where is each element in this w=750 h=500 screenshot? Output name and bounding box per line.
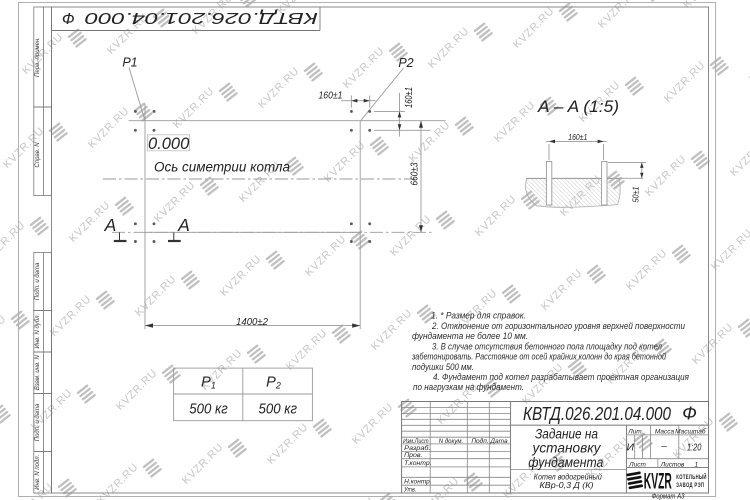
svg-text:И: И [626,442,634,454]
svg-text:Утв.: Утв. [403,486,416,493]
svg-text:KVZR.RU: KVZR.RU [171,85,217,131]
svg-text:KVZR.RU: KVZR.RU [728,133,750,179]
svg-text:660±3: 660±3 [409,162,421,185]
svg-text:Справ. N: Справ. N [35,142,41,168]
svg-text:Ф: Ф [62,9,75,26]
svg-text:КВТД.026.201.04.000: КВТД.026.201.04.000 [85,9,318,26]
svg-text:160±1: 160±1 [319,90,343,102]
svg-text:KVZR.RU: KVZR.RU [303,233,349,279]
svg-text:Дата: Дата [489,438,508,445]
svg-text:Пров.: Пров. [404,452,423,459]
svg-text:Масштаб: Масштаб [675,428,706,436]
svg-text:50±1: 50±1 [631,186,641,202]
svg-text:KVZR.RU: KVZR.RU [86,105,132,151]
svg-text:KVZR.RU: KVZR.RU [284,327,330,373]
svg-text:KVZR.RU: KVZR.RU [492,99,538,145]
svg-text:Перв. примен.: Перв. примен. [35,37,41,77]
svg-text:Инв. N подл.: Инв. N подл. [35,455,41,490]
svg-text:KVZR.RU: KVZR.RU [369,307,415,353]
svg-text:Листов: Листов [660,462,685,469]
svg-text:KVZR.RU: KVZR.RU [473,193,519,239]
svg-text:KVZR.RU: KVZR.RU [690,321,736,367]
svg-text:KVZR.RU: KVZR.RU [520,361,566,407]
svg-text:КВр-0,3 Д (К): КВр-0,3 Д (К) [540,480,594,490]
svg-text:KVZR.RU: KVZR.RU [95,461,141,500]
svg-text:P2: P2 [398,56,413,70]
svg-text:Инв. N дубл.: Инв. N дубл. [35,314,41,349]
svg-text:KVZR.RU: KVZR.RU [265,421,311,467]
svg-text:P1: P1 [122,56,137,70]
svg-text:KVZR: KVZR [644,469,672,494]
svg-text:ЗАВОД РЭП: ЗАВОД РЭП [676,483,704,489]
svg-text:KVZR.RU: KVZR.RU [218,253,264,299]
svg-text:KVZR.RU: KVZR.RU [10,481,56,500]
svg-text:Лит.: Лит. [627,429,643,436]
svg-text:160±1: 160±1 [403,87,415,108]
svg-text:KVZR.RU: KVZR.RU [350,401,396,447]
svg-text:KVZR.RU: KVZR.RU [624,247,670,293]
svg-text:500 кг: 500 кг [189,402,228,418]
svg-text:Масса: Масса [655,429,675,436]
svg-text:A – A (1:5): A – A (1:5) [537,98,619,116]
svg-text:KVZR.RU: KVZR.RU [643,153,689,199]
svg-text:забетонировать. Расстояние от: забетонировать. Расстояние от осей крайн… [411,352,666,363]
svg-text:A: A [104,215,117,235]
svg-text:по нагрузкам на фундамент.: по нагрузкам на фундамент. [413,382,524,393]
svg-text:Формат А3: Формат А3 [652,491,686,500]
svg-text:KVZR.RU: KVZR.RU [0,219,28,265]
svg-text:0.000: 0.000 [148,135,190,153]
svg-text:KVZR.RU: KVZR.RU [20,31,66,77]
svg-text:КВТД.026.201.04.000: КВТД.026.201.04.000 [523,403,672,424]
svg-text:KVZR.RU: KVZR.RU [0,313,9,359]
svg-text:KVZR.RU: KVZR.RU [426,25,472,71]
svg-text:Лист: Лист [628,461,646,468]
svg-text:Подп. и дата: Подп. и дата [35,262,41,300]
svg-text:A: A [177,215,190,235]
svg-text:KVZR.RU: KVZR.RU [511,5,557,51]
svg-text:500 кг: 500 кг [259,402,298,418]
svg-text:KVZR.RU: KVZR.RU [133,273,179,319]
svg-text:KVZR.RU: KVZR.RU [407,119,453,165]
svg-text:N докум.: N докум. [439,437,464,445]
svg-text:Подп.: Подп. [471,437,488,445]
svg-text:KVZR.RU: KVZR.RU [662,59,708,105]
svg-text:KVZR.RU: KVZR.RU [331,495,377,500]
svg-text:–: – [660,441,667,452]
svg-text:Изм.Лист: Изм.Лист [403,438,429,445]
svg-text:Взам. инв. N: Взам. инв. N [35,355,41,391]
svg-text:КОТЕЛЬНЫЙ: КОТЕЛЬНЫЙ [676,473,707,481]
svg-text:1:20: 1:20 [687,442,702,454]
svg-text:Подп. и дата: Подп. и дата [35,403,41,441]
svg-text:KVZR.RU: KVZR.RU [341,45,387,91]
svg-text:KVZR.RU: KVZR.RU [256,65,302,111]
svg-text:KVZR.RU: KVZR.RU [322,139,368,185]
svg-text:Н.контр.: Н.контр. [404,479,432,486]
svg-text:Ф: Ф [682,403,697,424]
svg-text:KVZR.RU: KVZR.RU [114,367,160,413]
svg-text:KVZR.RU: KVZR.RU [596,0,642,31]
svg-text:KVZR.RU: KVZR.RU [180,441,226,487]
svg-text:KVZR.RU: KVZR.RU [681,0,727,11]
svg-text:фундамента не более 10 мм.: фундамента не более 10 мм. [412,331,528,342]
svg-text:1. * Размер для справок.: 1. * Размер для справок. [431,311,526,322]
svg-text:KVZR.RU: KVZR.RU [539,267,585,313]
svg-text:1: 1 [694,462,698,469]
svg-text:1400±2: 1400±2 [236,316,268,328]
svg-text:Ось симетрии котла: Ось симетрии котла [154,159,290,175]
svg-text:фундамента: фундамента [528,454,603,470]
svg-text:P2: P2 [266,375,281,391]
svg-text:160±1: 160±1 [568,132,587,142]
svg-text:KVZR.RU: KVZR.RU [48,293,94,339]
svg-text:KVZR.RU: KVZR.RU [152,179,198,225]
svg-text:KVZR.RU: KVZR.RU [388,213,434,259]
svg-text:Разраб.: Разраб. [404,444,431,452]
svg-text:Т.контр.: Т.контр. [404,460,432,467]
